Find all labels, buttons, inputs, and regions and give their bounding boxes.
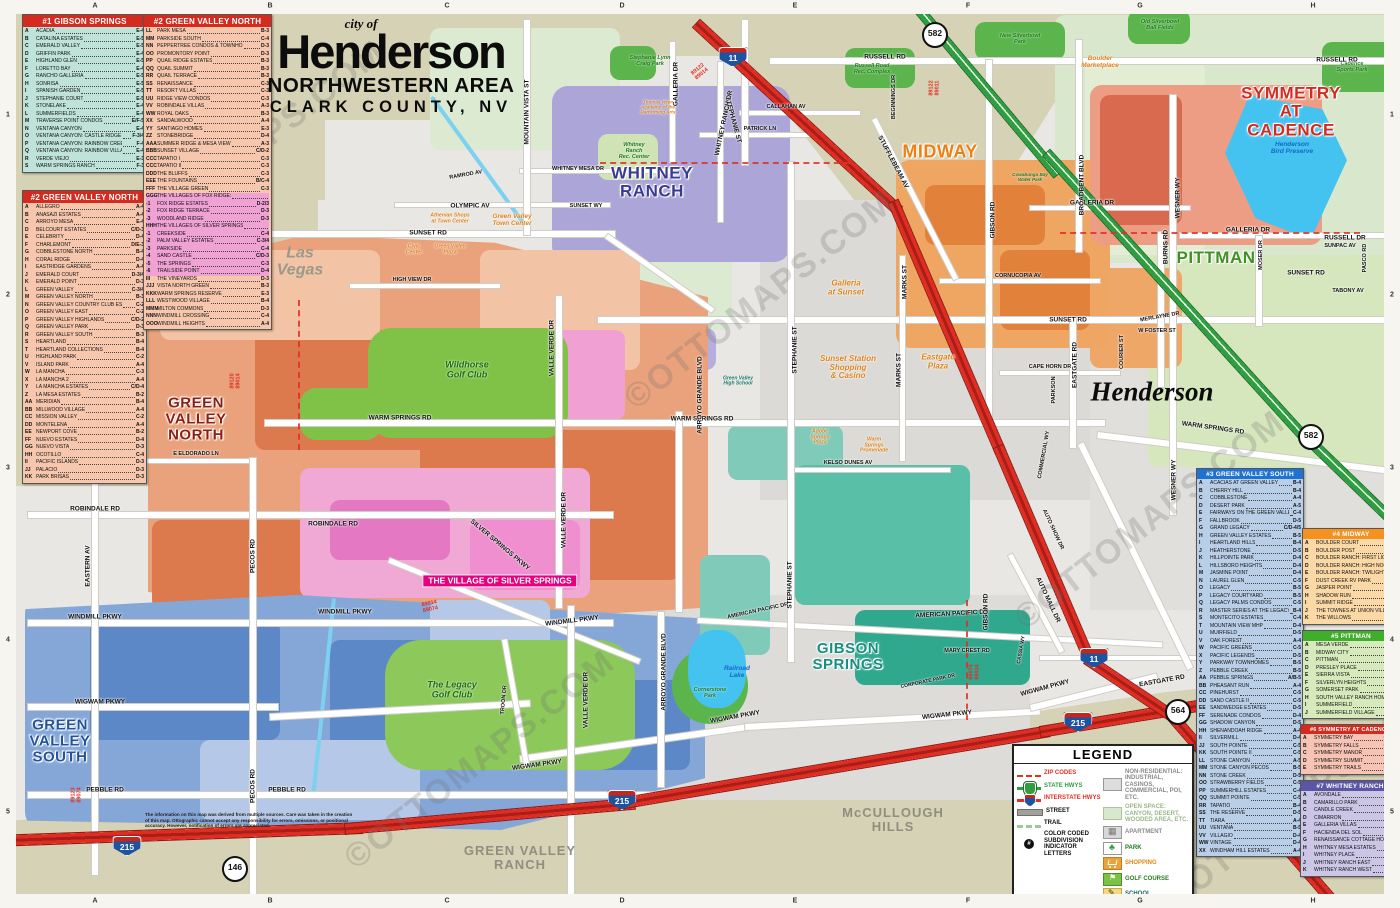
index-row: PVENTANA CANYON: RAINBOW CREEKF-4 (25, 141, 144, 149)
legend-swatch-icon (1103, 857, 1122, 870)
grid-ref: 4 (6, 637, 10, 644)
map-label: ROBINDALE RD (308, 520, 358, 527)
index-row: KHILLPOINTE PARKD-4 (1199, 555, 1301, 563)
grid-ref: E (793, 898, 798, 905)
index-row: GGGTHE VILLAGES OF FOX RIDGE: (146, 193, 269, 201)
legend-symbol-icon (1017, 787, 1041, 790)
index-row: UURIDGE VIEW CONDOSC-3 (146, 96, 269, 104)
legend-row: STREET (1017, 806, 1103, 816)
index-row: IIITHE VINEYARDSD-3 (146, 276, 269, 284)
map-label: PARKSON (1052, 376, 1058, 403)
legend-swatch-icon (1103, 807, 1122, 820)
map-label: PASCO RD (1363, 244, 1369, 273)
map-label: Adobe Springs Plaza (810, 430, 829, 447)
index-row: ZZSTONEBRIDGED-4 (146, 133, 269, 141)
index-row: CSYMMETRY MANORH-1 (1303, 750, 1397, 758)
index-row: AAVONDALED-1 (1303, 792, 1397, 800)
grid-ref: 3 (1390, 465, 1394, 472)
index-row: ASYMMETRY BAYG/H-1 (1303, 735, 1397, 743)
legend-row: OPEN SPACE: CANYON, DESERT, WOODED AREA,… (1103, 804, 1189, 824)
index-row: XPACIFIC LEGENDSD-5 (1199, 653, 1301, 661)
index-row: DDESERT PARKA-5 (1199, 503, 1301, 511)
grid-ref: 1 (1390, 112, 1394, 119)
legend-row: GOLF COURSE (1103, 873, 1189, 886)
grid-ref: G (1137, 898, 1142, 905)
map-label: Civic Center (406, 244, 422, 255)
legend-label: PARK (1125, 845, 1142, 852)
map-label: Whitney Ranch Rec. Center (619, 143, 650, 161)
map-label: Russell Road Rec. Complex (854, 64, 890, 76)
index-row: QVENTANA CANYON: RAINBOW VILLASE-4 (25, 148, 144, 156)
map-label: MARKS ST (895, 353, 902, 387)
index-row: OLEGACYB-5 (1199, 585, 1301, 593)
map-label: BEGINNINGS DR (892, 75, 898, 119)
legend-label: TRAIL (1044, 820, 1062, 827)
disclaimer-text: The information on this map was derived … (145, 812, 357, 829)
map-label: VALLE VERDE DR (560, 492, 567, 548)
index-row: IWHITNEY PLACEE-1 (1303, 852, 1397, 860)
index-row: DDDTHE BLUFFSC-3 (146, 171, 269, 179)
index-row: NNPEPPERTREE CONDOS & TOWNHOMESD-3 (146, 43, 269, 51)
legend-title: LEGEND (1014, 746, 1192, 764)
index-row: DGRIFFIN PARKE-4 (25, 51, 144, 59)
map-label: E ELDORADO LN (173, 452, 219, 458)
map-label: Boulder Marketplace (1081, 55, 1119, 69)
index-row: ISPANISH GARDENE-5 (25, 88, 144, 96)
index-row: SHEARTLANDB-4 (25, 339, 144, 347)
state-route-shield-icon: 146 (222, 856, 248, 882)
index-row: FFFTHE VILLAGE GREENC-3 (146, 186, 269, 194)
map-label: HIGH VIEW DR (393, 278, 432, 284)
grid-ref: D (619, 3, 624, 10)
index-row: BCAMARILLO PARKE-2 (1303, 800, 1397, 808)
grid-ref: E (793, 3, 798, 10)
map-label: Sunset Station Shopping & Casino (820, 355, 876, 381)
map-label: SUNPAC AV (1324, 244, 1355, 250)
index-row: NNNWINDMILL CROSSINGC-4 (146, 313, 269, 321)
map-label: PEBBLE RD (268, 786, 306, 793)
index-row: GGNUEVO VISTAD-3 (25, 444, 144, 452)
index-row: WWVINTAGED-4 (1199, 840, 1301, 848)
index-row: GRENAISSANCE COTTAGE HOMESE-2 (1303, 837, 1397, 845)
index-row: -1CREEKSIDEC-4 (146, 231, 269, 239)
map-label: TABONY AV (1332, 289, 1363, 295)
index-row: SSRENAISSANCEC-3 (146, 81, 269, 89)
map-label: Stephanie Lynn Craig Park (630, 56, 671, 68)
grid-ref: F (966, 898, 970, 905)
legend-row: INTERSTATE HWYS (1017, 794, 1103, 804)
index-row: WLA MANCHAC-3 (25, 369, 144, 377)
index-row: AACADIAE-4 (25, 28, 144, 36)
index-row: KKPARK BRISASD-3 (25, 474, 144, 482)
map-label: Railroad Lake (724, 665, 750, 679)
index-row: NNSTONE CREEKD-5 (1199, 773, 1301, 781)
map-label: KELSO DUNES AV (824, 461, 872, 467)
legend-row: STATE HWYS (1017, 781, 1103, 791)
grid-ref: F (966, 3, 970, 10)
index-row: CCANDLE CREEKE-2 (1303, 807, 1397, 815)
index-row: GGRAND LEGACYC/D-4/5 (1199, 525, 1301, 533)
map-label: SUNSET RD (1287, 269, 1325, 276)
map-label: MOUNTAIN VISTA ST (523, 80, 530, 145)
index-row: YYSANTIAGO HOMESE-3 (146, 126, 269, 134)
index-row: RMASTER SERIES AT THE LEGACYB-4 (1199, 608, 1301, 616)
index-row: CCOBBLESTONEA-4 (1199, 495, 1301, 503)
index-row: BBPHEASANT RUNA-4 (1199, 683, 1301, 691)
map-label: GREEN VALLEY RANCH (464, 844, 576, 872)
grid-ref: 1 (6, 112, 10, 119)
map-label: WESNER WY (1174, 178, 1181, 219)
index-row: BCHERRY HILLB-4 (1199, 488, 1301, 496)
map-label: GALLERIA DR (672, 62, 679, 106)
legend-swatch-icon (1103, 873, 1122, 886)
index-row: RGREEN VALLEY SOUTHB-3 (25, 332, 144, 340)
grid-ref: G (1137, 3, 1142, 10)
title-county: CLARK COUNTY, NV (258, 98, 524, 117)
index-row: GCOBBLESTONE NORTHB-4 (25, 249, 144, 257)
legend-symbol-icon (1017, 825, 1041, 828)
index-row: OGREEN VALLEY EASTC-2 (25, 309, 144, 317)
index-row: TMOUNTAIN VIEW MHPD-4 (1199, 623, 1301, 631)
map-label: GIBSON SPRINGS (812, 641, 883, 673)
index-row: FFSERENADE CONDOSD-4 (1199, 713, 1301, 721)
map-label: Cornerstone Park (694, 688, 727, 700)
map-label: 89123 89074 (71, 787, 84, 802)
legend-symbol-icon (1017, 809, 1043, 816)
map-label: MIDWAY (902, 142, 977, 161)
map-label: Green Valley Town Center (492, 213, 531, 227)
index-row: BANASAZI ESTATESA-4 (25, 212, 144, 220)
index-row: CEMERALD VALLEYE-5 (25, 43, 144, 51)
index-row: -1FOX RIDGE ESTATESD-2/3 (146, 201, 269, 209)
legend-label: INTERSTATE HWYS (1044, 795, 1100, 802)
index-row: MJASMINE POINTD-4 (1199, 570, 1301, 578)
index-row: -4SAND CASTLEC/D-3 (146, 253, 269, 261)
map-label: Cowabunga Bay Water Park (1012, 173, 1048, 183)
map-label: WIGWAM PKWY (75, 698, 125, 705)
map-label: Warm Springs Promenade (860, 438, 888, 455)
grid-ref: 4 (1390, 637, 1394, 644)
grid-ref: 5 (1390, 809, 1394, 816)
index-row: LHILLSBORO HEIGHTSD-4 (1199, 563, 1301, 571)
grid-ref: H (1310, 898, 1315, 905)
index-row: VVROBINDALE VILLASA-3 (146, 103, 269, 111)
index-row: LLSTONE CANYONA-5 (1199, 758, 1301, 766)
map-label: PATRICK LN (744, 127, 777, 133)
index-row: UUVENTANAB-5 (1199, 825, 1301, 833)
index-row: AAPEBBLE SPRINGSA/B-5 (1199, 675, 1301, 683)
map-label: Henderson (1090, 377, 1213, 406)
index-row: FFNUEVO ESTATESD-4 (25, 437, 144, 445)
index-row: EFAIRWAYS ON THE GREEN VALLEYC-4 (1199, 510, 1301, 518)
grid-ref: A (92, 3, 97, 10)
legend-symbol-icon (1017, 799, 1041, 802)
index-row: QGREEN VALLEY PARKD-3 (25, 324, 144, 332)
index-row: JHEATHERSTONED-5 (1199, 548, 1301, 556)
index-row: THEARTLAND COLLECTIONSB-4 (25, 347, 144, 355)
index-row: IHEARTLAND HILLSB-4 (1199, 540, 1301, 548)
grid-ref: C (444, 3, 449, 10)
map-label: CAPE HORN DR (1029, 365, 1071, 371)
map-label: The Legacy Golf Club (427, 680, 477, 699)
index-row: NLAUREL GLENC-5 (1199, 578, 1301, 586)
index-row: HHOCOTILLOC-4 (25, 452, 144, 460)
index-row: XLA MANCHA 2A-4 (25, 377, 144, 385)
map-label: SUNSET RD (409, 229, 447, 236)
index-row: -2PALM VALLEY ESTATESC-3/4 (146, 238, 269, 246)
index-row: QQSUMMIT POINTEC-5 (1199, 795, 1301, 803)
index-row: JEMERALD COURTD-3/4 (25, 272, 144, 280)
index-row: SSTHE RESERVED-5 (1199, 810, 1301, 818)
grid-ref: C (444, 898, 449, 905)
map-label: Thomas Wren Academy of the Performing Ar… (641, 101, 676, 116)
map-label: Green Valley High School (723, 377, 753, 388)
index-row: DSYMMETRY SUMMITH-1 (1303, 758, 1397, 766)
legend-row: APARTMENT (1103, 826, 1189, 839)
legend-row: TRAIL (1017, 819, 1103, 829)
index-row: FCHARLEMONTD/E-3 (25, 242, 144, 250)
map-label: EASTERN AV (84, 545, 91, 586)
map-label: Cadence Sports Park (1337, 62, 1368, 74)
grid-ref: B (267, 898, 272, 905)
title-area: NORTHWESTERN AREA (258, 74, 524, 98)
index-row: NGREEN VALLEY COUNTRY CLUB ESTATESC-2 (25, 302, 144, 310)
map-label: GALLERIA DR (1070, 199, 1114, 206)
map-legend: LEGEND ZIP CODES STATE HWYS INTERSTATE H… (1012, 744, 1194, 896)
index-row: FHACIENDA DEL SOLF-1 (1303, 830, 1397, 838)
index-row: ZLA MESA ESTATESB-2 (25, 392, 144, 400)
grid-ref: A (92, 898, 97, 905)
index-row: OOPROMONTORY POINTD-3 (146, 51, 269, 59)
index-box-green-valley-north-2: #2 GREEN VALLEY NORTH LLPARK MESAB-3MMPA… (143, 14, 272, 330)
map-label: WINDMILL PKWY (68, 613, 122, 620)
index-row: ESYMMETRY TRAILSG/H-1 (1303, 765, 1397, 773)
index-row: QQQUAIL SUMMITB-3 (146, 66, 269, 74)
index-row: HCORAL RIDGED-4 (25, 257, 144, 265)
legend-row: PARK (1103, 842, 1189, 855)
map-label: McCULLOUGH HILLS (842, 806, 944, 834)
map-label: CALLAHAN AV (766, 105, 805, 111)
map-label: COURIER ST (1120, 335, 1126, 369)
map-label: MARY CREST RD (944, 649, 990, 655)
map-label: SYMMETRY AT CADENCE (1237, 84, 1346, 139)
index-row: VOAK FORESTA-4 (1199, 638, 1301, 646)
legend-row: ZIP CODES (1017, 769, 1103, 779)
legend-label: ZIP CODES (1044, 770, 1076, 777)
index-row: MMSTONE CANYON PECOSB-5 (1199, 765, 1301, 773)
index-row: KEMERALD POINTD-3 (25, 279, 144, 287)
map-label: GIBSON RD (989, 202, 996, 239)
index-row: JJSOUTH POINTEC-5 (1199, 743, 1301, 751)
index-row: DDMONTELENAA-4 (25, 422, 144, 430)
index-row: BBMILLWOOD VILLAGEA-4 (25, 407, 144, 415)
legend-label: STATE HWYS (1044, 783, 1082, 790)
grid-ref: 5 (6, 809, 10, 816)
index-row: AAASUMMER RIDGE & MESA VIEWA-3 (146, 141, 269, 149)
index-row: -6TRAILSIDE POINTD-4 (146, 268, 269, 276)
henderson-map-poster[interactable]: WHITNEY RANCHMIDWAYSYMMETRY AT CADENCEPI… (0, 0, 1400, 908)
map-label: Eastgate Plaza (921, 353, 954, 370)
index-row: CCMISSION VALLEYC-2 (25, 414, 144, 422)
index-row: EHIGHLAND GLENE-5 (25, 58, 144, 66)
index-row: DBELCOURT ESTATESC/D-3 (25, 227, 144, 235)
map-label: MOSER DR (1259, 240, 1265, 270)
map-label: BURNS RD (1162, 230, 1169, 264)
map-label: New Silverbowl Park (1000, 34, 1040, 46)
map-label: GIBSON RD (982, 594, 989, 631)
index-row: FLORETTO BAYE-4 (25, 66, 144, 74)
index-row: BBBSUNSET VILLAGEC/D-2 (146, 148, 269, 156)
legend-swatch-icon (1103, 778, 1122, 791)
map-label: PECOS RD (249, 769, 256, 803)
map-label: Las Vegas (277, 245, 324, 280)
map-label: 89120 89014 (230, 373, 243, 388)
map-label: Henderson Bird Preserve (1271, 141, 1313, 155)
index-row: IEASTRIDGE GARDENSA-4 (25, 264, 144, 272)
map-label: Wildhorse Golf Club (445, 360, 488, 379)
index-row: -3PARKSIDEC-4 (146, 246, 269, 254)
map-label: GREEN VALLEY SOUTH (29, 718, 90, 767)
index-header: #3 GREEN VALLEY SOUTH (1197, 469, 1303, 479)
index-row: VISLAND PARKA-4 (25, 362, 144, 370)
index-row: KSTONELAKEE-4 (25, 103, 144, 111)
index-header: #2 GREEN VALLEY NORTH (23, 191, 146, 203)
map-label: RAMROD AV (449, 170, 483, 182)
map-label: STEPHANIE ST (786, 561, 793, 608)
index-row: YPARKWAY TOWNHOMESB-5 (1199, 660, 1301, 668)
index-row: JWHITNEY RANCH EASTE-1 (1303, 860, 1397, 868)
state-route-shield-icon: 582 (922, 22, 948, 48)
state-route-shield-icon: 564 (1165, 699, 1191, 725)
index-row: DCIMARRONE-2 (1303, 815, 1397, 823)
index-row: CCPINEHURSTC-5 (1199, 690, 1301, 698)
index-row: HWHITNEY MESA ESTATESD-2 (1303, 845, 1397, 853)
index-row: GGSHADOW CANYOND-5 (1199, 720, 1301, 728)
map-label: WHITNEY RANCH (611, 165, 693, 202)
map-label: ROBINDALE RD (70, 505, 120, 512)
index-row: EGALLERIA VILLASE-2 (1303, 822, 1397, 830)
legend-label: COLOR CODED SUBDIVISION INDICATOR LETTER… (1044, 831, 1103, 857)
map-label: WINDMILL PKWY (318, 608, 372, 615)
map-label: 89122 89014 (690, 62, 710, 82)
map-label: GALLERIA DR (1226, 226, 1270, 233)
index-row: KWHITNEY RANCH WESTF-1 (1303, 867, 1397, 875)
legend-label: OPEN SPACE: CANYON, DESERT, WOODED AREA,… (1125, 804, 1188, 824)
index-box-green-valley-north-1: #2 GREEN VALLEY NORTH AALLEGROA-4BANASAZ… (22, 190, 147, 484)
index-row: IISILVERMILLD-4 (1199, 735, 1301, 743)
index-row: OVENTANA CANYON: CASTLE RIDGE ESTATESF-3… (25, 133, 144, 141)
map-label: Green Valley Plaza (434, 244, 465, 255)
legend-row: COLOR CODED SUBDIVISION INDICATOR LETTER… (1017, 831, 1103, 857)
map-label: PEBBLE RD (86, 786, 124, 793)
index-row: XXSANDALWOODA-4 (146, 118, 269, 126)
index-row: VVVILLAGIOD-4 (1199, 833, 1301, 841)
index-row: MTRAVERSE POINT CONDOSE/F-5 (25, 118, 144, 126)
map-label: STEPHANIE ST (791, 326, 798, 373)
index-row: YLA MANCHA ESTATESC/D-4 (25, 384, 144, 392)
index-row: BCATALINA ESTATESE-5 (25, 36, 144, 44)
legend-symbol-icon (1017, 775, 1041, 777)
grid-ref: D (619, 898, 624, 905)
index-row: DDSAND CASTLE IIC-5 (1199, 698, 1301, 706)
map-label: RUSSELL RD (1316, 56, 1357, 63)
index-row: PGREEN VALLEY HIGHLANDSC/D-2 (25, 317, 144, 325)
index-row: -3WOODLAND RIDGED-3 (146, 216, 269, 224)
index-row: JSTEPHANIE COURTE-5 (25, 96, 144, 104)
map-label: VALLE VERDE DR (548, 320, 555, 376)
index-row: RRQUAIL TERRACEB-3 (146, 73, 269, 81)
index-row: OOOWINDMILL HEIGHTSA-4 (146, 321, 269, 329)
index-row: PPQUAIL RIDGE ESTATESB-3 (146, 58, 269, 66)
index-row: MGREEN VALLEY NORTHB-3 (25, 294, 144, 302)
map-label: RUSSELL RD (864, 53, 905, 60)
index-row: NVENTANA CANYONE-4 (25, 126, 144, 134)
index-row: BSYMMETRY FALLSG/H-1 (1303, 743, 1397, 751)
state-route-shield-icon: 582 (1298, 424, 1324, 450)
grid-ref: 3 (6, 465, 10, 472)
index-row: RRTAPATIOB-4 (1199, 803, 1301, 811)
index-row: LGREEN VALLEYC-3/4 (25, 287, 144, 295)
index-row: LSUMMERFIELDSE-4 (25, 111, 144, 119)
map-label: WHITNEY MESA DR (552, 167, 604, 173)
index-header: #1 GIBSON SPRINGS (23, 15, 146, 27)
grid-ref: 2 (6, 292, 10, 299)
map-label: Galleria at Sunset (828, 279, 864, 296)
index-row: XXWINDHAM HILL ESTATESA-4 (1199, 848, 1301, 856)
index-row: EESANDWEDGE ESTATESD-5 (1199, 705, 1301, 713)
index-row: FFALLBROOKD-5 (1199, 518, 1301, 526)
index-row: -5THE SPRINGSC-3 (146, 261, 269, 269)
index-row: HSONRISAE-5 (25, 81, 144, 89)
map-label: 89074 89014 (969, 664, 982, 679)
legend-label: GOLF COURSE (1125, 876, 1169, 883)
index-row: QLEGACY PALMS CONDOSC-5 (1199, 600, 1301, 608)
index-row: UMUIRFIELDD-5 (1199, 630, 1301, 638)
map-label: PITTMAN (1176, 249, 1255, 267)
legend-swatch-icon (1103, 826, 1122, 839)
map-label: EASTGATE RD (1071, 342, 1078, 388)
map-title: city of Henderson NORTHWESTERN AREA CLAR… (258, 16, 524, 117)
grid-ref: H (1310, 3, 1315, 10)
index-row: PPSUMMERHILL ESTATESC-4 (1199, 788, 1301, 796)
index-row: HGREEN VALLEY ESTATESB-5 (1199, 533, 1301, 541)
index-row: PLEGACY COURTYARDB-5 (1199, 593, 1301, 601)
legend-label: NON-RESIDENTIAL: INDUSTRIAL, CASINOS, CO… (1125, 769, 1189, 802)
index-box-green-valley-south: #3 GREEN VALLEY SOUTH AACACIAS AT GREEN … (1196, 468, 1304, 857)
legend-label: APARTMENT (1125, 829, 1162, 836)
index-row: JJJVISTA NORTH GREENB-3 (146, 283, 269, 291)
map-label: RUSSELL DR (1324, 234, 1365, 241)
index-row: TTTIARAA-4 (1199, 818, 1301, 826)
index-row: WWROYAL OAKSB-3 (146, 111, 269, 119)
map-label: PECOS RD (249, 539, 256, 573)
index-row: HHSHENANDOAH RIDGEA-4 (1199, 728, 1301, 736)
map-label: SUNSET WY (570, 204, 603, 210)
index-row: SWARM SPRINGS RANCHF-3 (25, 163, 144, 171)
legend-row: NON-RESIDENTIAL: INDUSTRIAL, CASINOS, CO… (1103, 769, 1189, 802)
index-box-gibson-springs: #1 GIBSON SPRINGS AACADIAE-4BCATALINA ES… (22, 14, 147, 173)
map-label: ARROYO GRANDE BLVD (660, 633, 667, 711)
index-row: EENEWPORT COVEB-2 (25, 429, 144, 437)
map-label: 89122 89011 (929, 80, 942, 95)
map-label: SUNSET RD (1049, 316, 1087, 323)
index-row: AACACIAS AT GREEN VALLEYB-4 (1199, 480, 1301, 488)
legend-symbol-icon (1017, 839, 1041, 850)
index-row: HHHTHE VILLAGES OF SILVER SPRINGS: (146, 223, 269, 231)
legend-label: STREET (1046, 808, 1070, 815)
map-label: Athenian Shops at Town Center (430, 213, 469, 224)
index-row: UHIGHLAND PARKC-2 (25, 354, 144, 362)
